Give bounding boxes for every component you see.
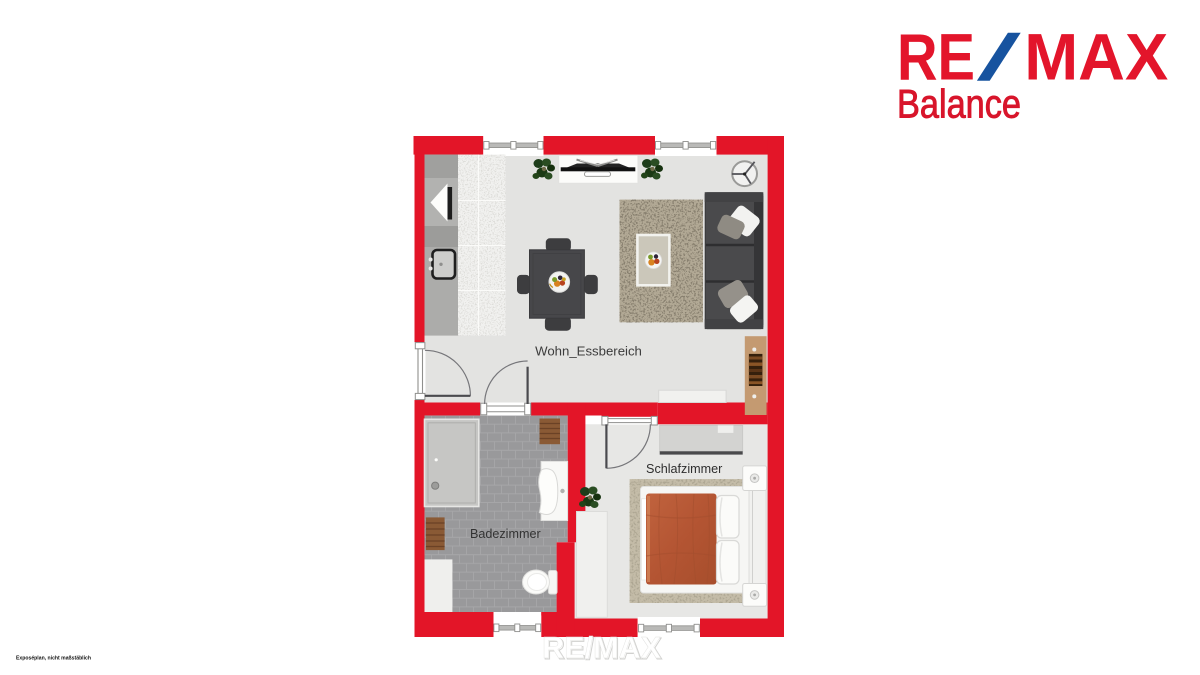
svg-text:MAX: MAX [1024,20,1168,94]
svg-text:Wohn_Essbereich: Wohn_Essbereich [535,344,642,359]
svg-text:Balance: Balance [897,83,1021,127]
svg-text:Badezimmer: Badezimmer [470,527,541,541]
svg-text:RE/MAX: RE/MAX [542,630,661,665]
svg-text:Schlafzimmer: Schlafzimmer [646,462,722,476]
svg-text:Exposéplan, nicht maßstäblich: Exposéplan, nicht maßstäblich [16,655,91,661]
